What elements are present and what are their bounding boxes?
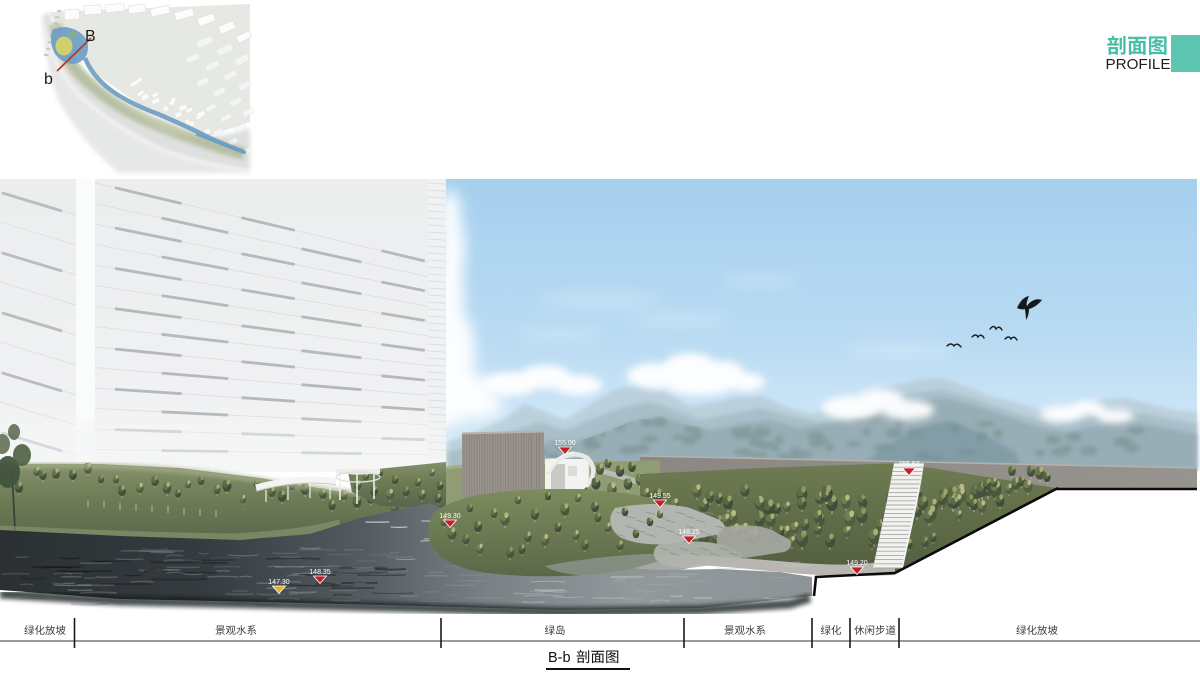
svg-text:147.30: 147.30 — [268, 579, 290, 586]
svg-text:148.35: 148.35 — [309, 569, 331, 576]
svg-text:148.25: 148.25 — [678, 529, 700, 536]
svg-text:B-b: B-b — [548, 650, 571, 666]
svg-text:149.20: 149.20 — [846, 560, 868, 567]
svg-text:PROFILE: PROFILE — [1106, 56, 1171, 73]
svg-text:B: B — [85, 28, 96, 45]
svg-text:b: b — [44, 71, 53, 88]
svg-text:149.55: 149.55 — [649, 493, 671, 500]
svg-text:149.30: 149.30 — [439, 513, 461, 520]
svg-text:155.00: 155.00 — [554, 440, 576, 447]
svg-text:155.53: 155.53 — [898, 461, 920, 468]
